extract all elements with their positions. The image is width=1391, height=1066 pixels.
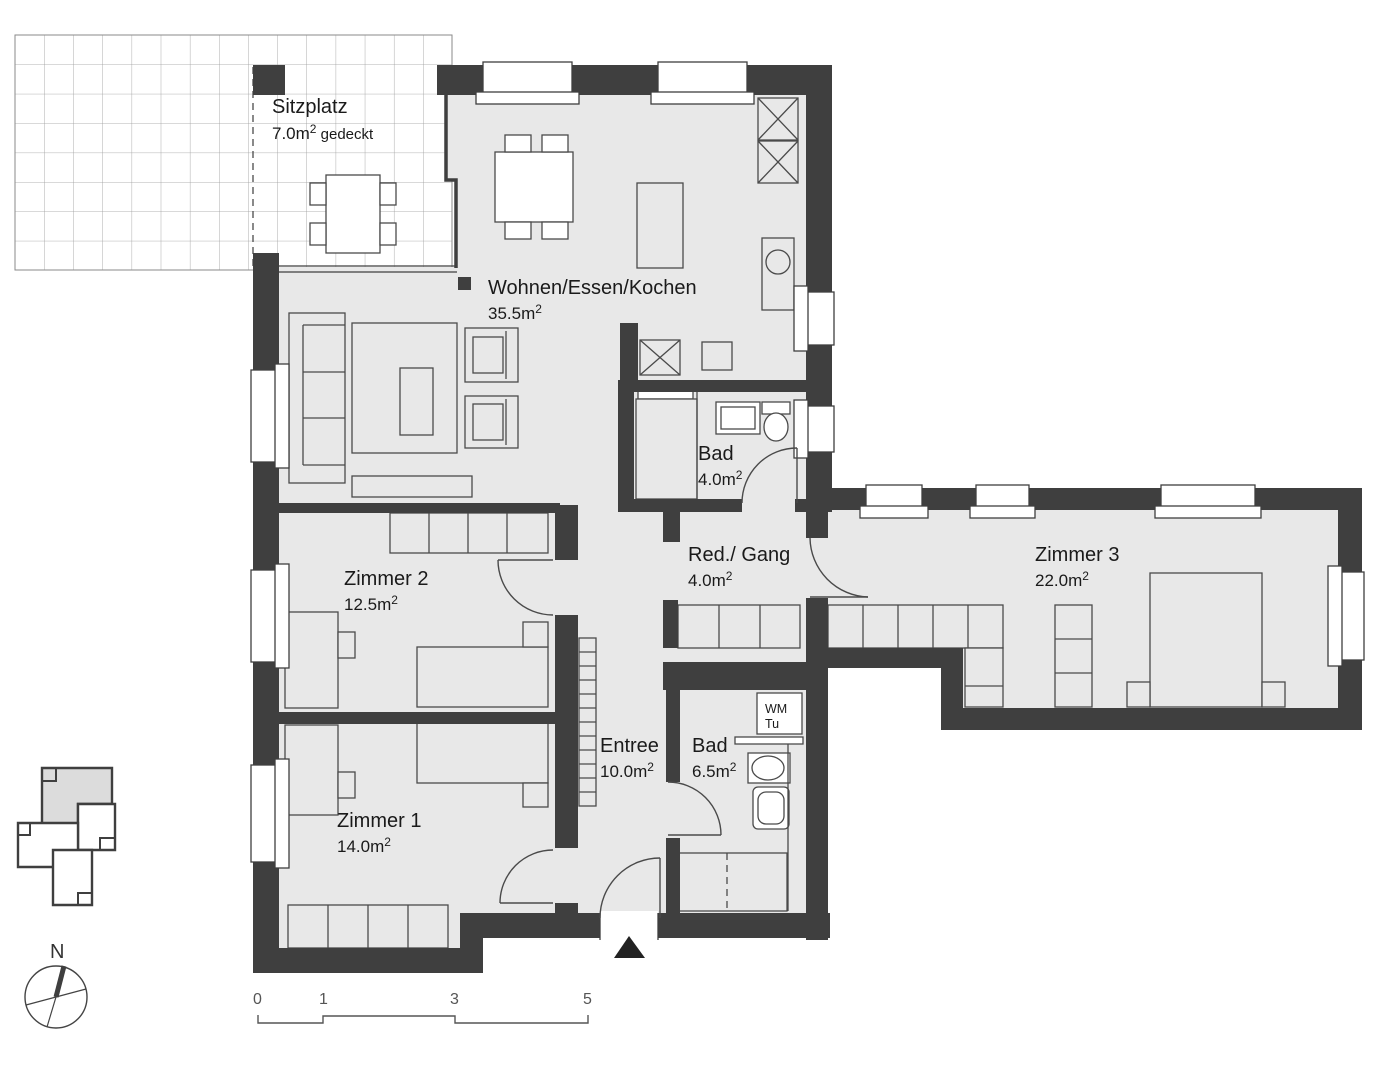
- window-sill: [1328, 566, 1342, 666]
- window-sill: [651, 92, 754, 104]
- room-label-wohnen: Wohnen/Essen/Kochen: [488, 277, 697, 299]
- terrace-chair: [310, 223, 326, 245]
- wall-zimmer3-door-post: [806, 598, 828, 648]
- desk-chair: [338, 632, 355, 658]
- outside-notch: [483, 938, 580, 980]
- desk: [285, 725, 338, 815]
- wall-south: [253, 948, 483, 973]
- window-sill: [860, 506, 928, 518]
- wall-zimmer2-zimmer1: [277, 712, 578, 724]
- window: [483, 62, 572, 96]
- wardrobe: [288, 905, 448, 948]
- room-area-entree: 10.0m2: [600, 760, 654, 781]
- dining-table: [495, 152, 573, 222]
- wall-gang-post: [663, 600, 678, 648]
- wall-zimmer3-south-jog: [941, 668, 963, 730]
- terrace-chair: [310, 183, 326, 205]
- nightstand: [523, 622, 548, 647]
- minimap-unit: [53, 850, 92, 905]
- dining-chair: [542, 222, 568, 239]
- dining-chair: [505, 222, 531, 239]
- dining-chair: [542, 135, 568, 152]
- window-sill: [275, 759, 289, 868]
- wall-bad-large-east: [806, 648, 828, 940]
- scale-tick-0: 0: [253, 991, 262, 1008]
- shelf: [579, 638, 596, 806]
- wall-bad-small-north: [626, 380, 806, 392]
- window-sill: [275, 564, 289, 668]
- bed: [417, 647, 548, 707]
- shower: [678, 853, 787, 911]
- bed: [417, 722, 548, 783]
- nightstand: [523, 783, 548, 807]
- wall-living-zimmer2: [277, 503, 560, 513]
- toilet: [764, 413, 788, 441]
- floor-plan-drawing: Sitzplatz 7.0m2 gedeckt Wohnen/Essen/Koc…: [0, 0, 1391, 1061]
- desk: [285, 612, 338, 708]
- room-label-bad-large: Bad: [692, 735, 728, 757]
- shelf: [1055, 605, 1092, 707]
- wall-zimmer3-southwest: [806, 648, 963, 668]
- room-label-entree: Entree: [600, 735, 659, 757]
- north-label: N: [50, 941, 64, 963]
- room-area-zimmer3: 22.0m2: [1035, 569, 1089, 590]
- compass: N: [25, 941, 87, 1028]
- wall-bad-large-north: [663, 662, 828, 690]
- wardrobe: [678, 605, 800, 648]
- window-sill: [275, 364, 289, 468]
- desk-chair: [338, 772, 355, 798]
- wall-zimmer3-south: [941, 708, 1362, 730]
- wall-gang-stub: [663, 510, 680, 542]
- minimap: [18, 768, 115, 905]
- window-sill: [794, 400, 808, 458]
- washing-machine-label: WM: [765, 702, 787, 716]
- shower: [636, 399, 697, 499]
- nightstand: [1262, 682, 1285, 707]
- room-label-zimmer2: Zimmer 2: [344, 568, 428, 590]
- window-sill: [476, 92, 579, 104]
- scale-tick-3: 3: [450, 991, 459, 1008]
- terrace-chair: [380, 223, 396, 245]
- dining-chair: [505, 135, 531, 152]
- entrance-opening: [600, 911, 658, 940]
- window-sill: [970, 506, 1035, 518]
- wardrobe: [390, 513, 548, 553]
- terrace-chair: [380, 183, 396, 205]
- wall-corridor-west: [555, 505, 578, 560]
- column: [458, 277, 471, 290]
- room-label-bad-small: Bad: [698, 443, 734, 465]
- window: [658, 62, 747, 96]
- wall-bad-large-west: [666, 690, 680, 782]
- minimap-unit: [78, 804, 115, 850]
- compass-needle: [56, 966, 64, 997]
- double-bed: [1150, 573, 1262, 707]
- wall-zimmer3-door-post: [806, 512, 828, 538]
- room-label-zimmer1: Zimmer 1: [337, 810, 421, 832]
- bathroom-shelf: [735, 737, 803, 744]
- room-area-sitzplatz: 7.0m2 gedeckt: [272, 122, 374, 143]
- terrace-post: [253, 65, 285, 95]
- room-label-zimmer3: Zimmer 3: [1035, 544, 1119, 566]
- scale-tick-1: 1: [319, 991, 328, 1008]
- wall-bad-large-west: [666, 838, 680, 918]
- window-sill: [794, 286, 808, 351]
- room-area-zimmer2: 12.5m2: [344, 593, 398, 614]
- window-sill: [1155, 506, 1261, 518]
- wall-corridor-west: [555, 615, 578, 848]
- room-area-zimmer1: 14.0m2: [337, 835, 391, 856]
- room-label-gang: Red./ Gang: [688, 544, 790, 566]
- outside-notch: [828, 668, 941, 950]
- wall-south: [460, 913, 600, 938]
- room-label-sitzplatz: Sitzplatz: [272, 96, 348, 118]
- nightstand: [1127, 682, 1150, 707]
- scale-bar: 0 1 3 5: [253, 991, 592, 1023]
- floor-plan: Sitzplatz 7.0m2 gedeckt Wohnen/Essen/Koc…: [0, 0, 1391, 1061]
- terrace: [15, 35, 452, 270]
- scale-bar-line: [258, 1015, 588, 1023]
- room-area-wohnen: 35.5m2: [488, 302, 542, 323]
- wall-south: [658, 913, 830, 938]
- terrace-table: [326, 175, 380, 253]
- dryer-label: Tu: [765, 717, 779, 731]
- wall-bad-small-west: [618, 380, 634, 512]
- scale-tick-5: 5: [583, 991, 592, 1008]
- toilet-cistern: [762, 402, 790, 414]
